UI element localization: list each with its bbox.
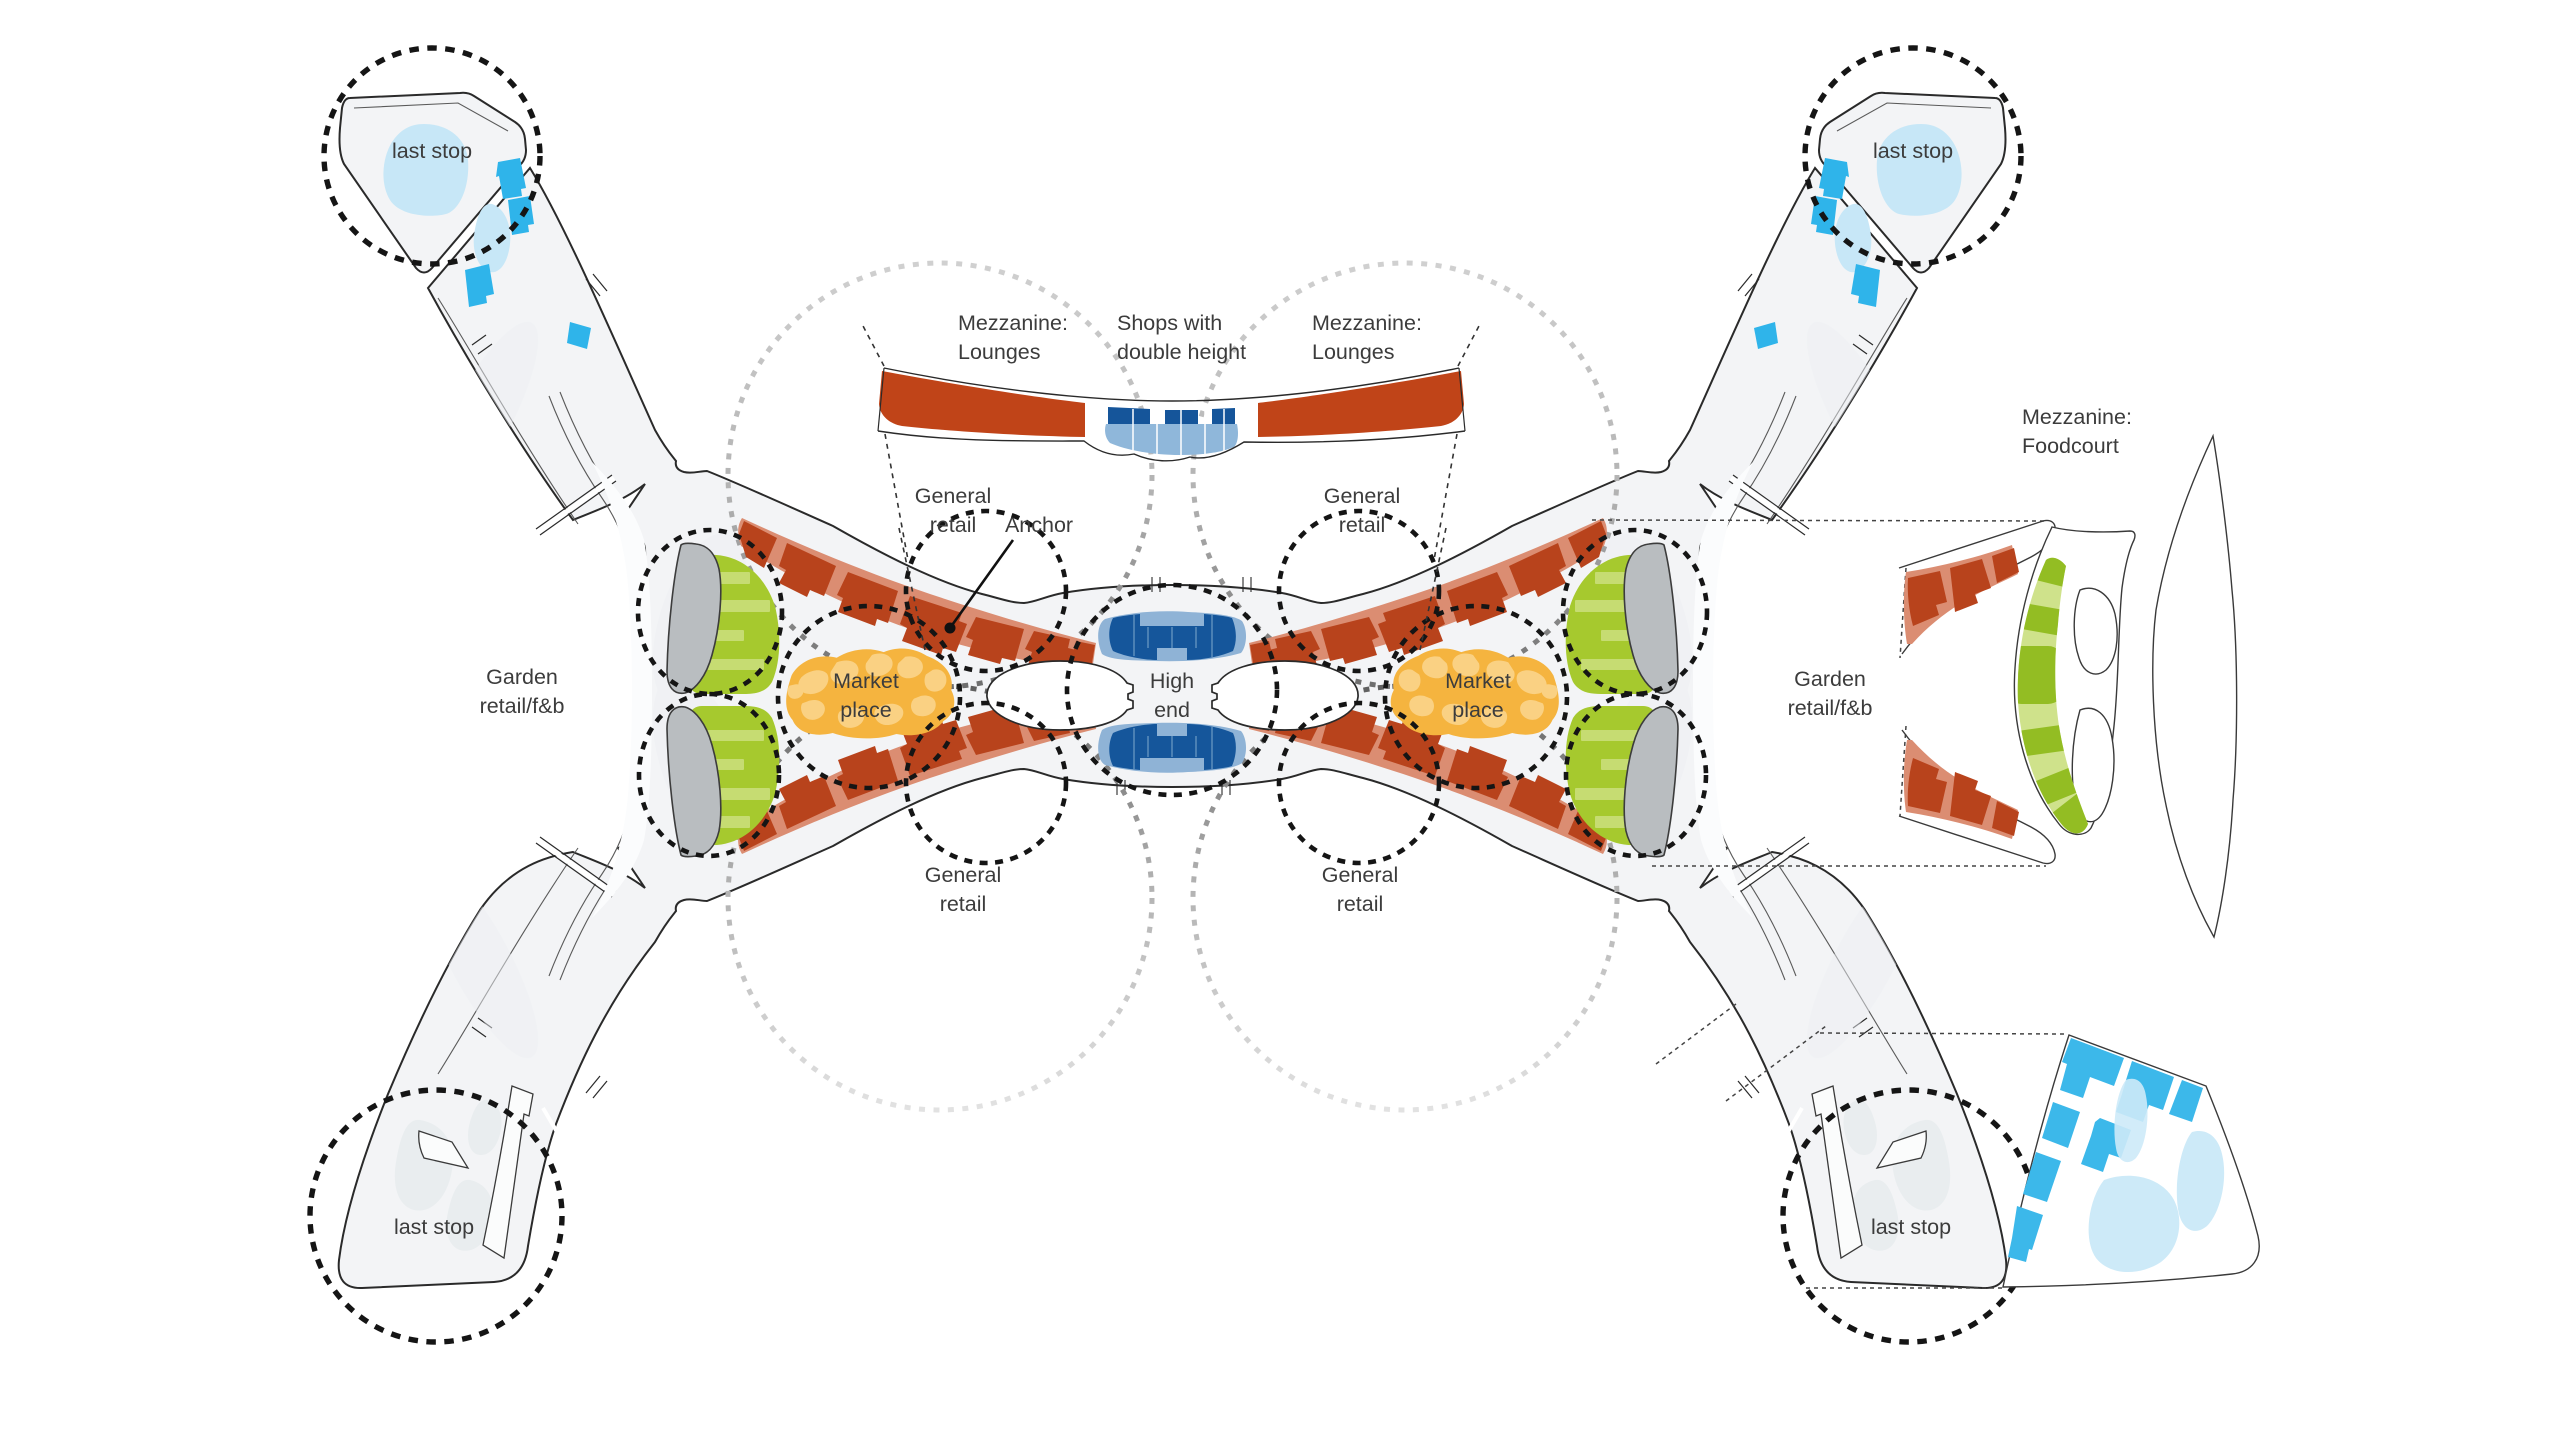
svg-text:Anchor: Anchor [1005,513,1073,537]
svg-text:last stop: last stop [1873,139,1953,163]
svg-text:last stop: last stop [392,139,472,163]
svg-text:last stop: last stop [394,1215,474,1239]
svg-text:last stop: last stop [1871,1215,1951,1239]
